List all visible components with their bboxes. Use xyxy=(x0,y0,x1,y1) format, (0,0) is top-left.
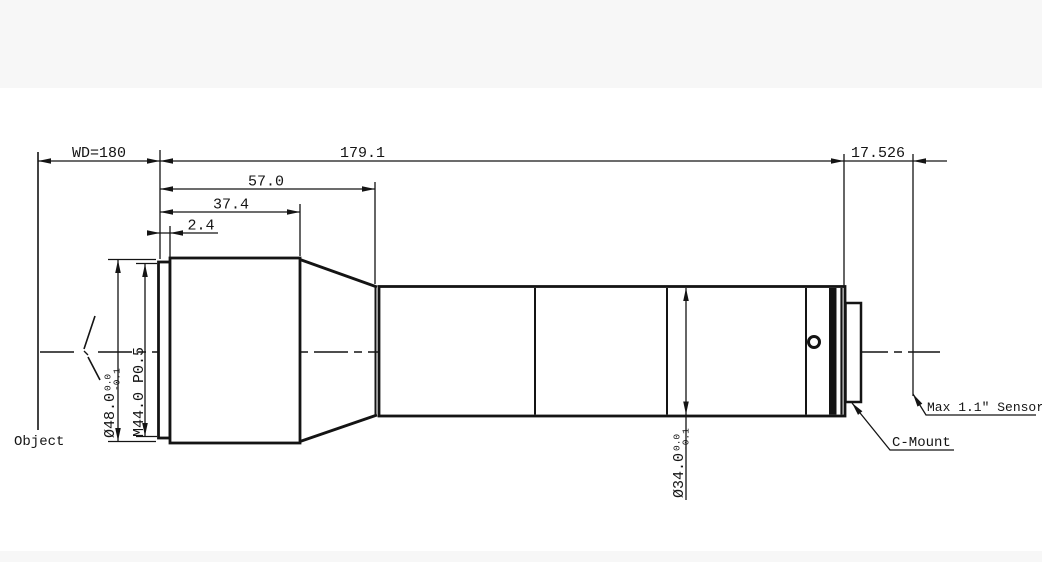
lens-barrel xyxy=(379,287,845,417)
technical-drawing: WD=180 179.1 17.526 57.0 37.4 2.4 Object… xyxy=(0,0,1042,562)
flange-distance-dimension: 17.526 xyxy=(851,145,905,162)
front-thread-callout: M44.0 P0.5 xyxy=(131,347,148,437)
working-distance-dimension: WD=180 xyxy=(72,145,126,162)
total-length-dimension: 179.1 xyxy=(340,145,385,162)
top-band xyxy=(0,0,1042,88)
step-length-dimension: 2.4 xyxy=(187,218,214,235)
set-screw xyxy=(809,337,820,348)
front-body-length-dimension: 37.4 xyxy=(213,197,249,214)
lens-front-step xyxy=(159,262,171,438)
object-label: Object xyxy=(14,434,64,450)
lens-front-body xyxy=(170,258,300,443)
lens-body xyxy=(159,258,862,443)
lens-technical-drawing-page: WD=180 179.1 17.526 57.0 37.4 2.4 Object… xyxy=(0,0,1042,562)
max-sensor-label: Max 1.1″ Sensor xyxy=(927,400,1042,415)
barrel-diameter-tolerance-lower: -0.1 xyxy=(681,428,692,451)
c-mount-label: C-Mount xyxy=(892,435,951,451)
c-mount-flange xyxy=(846,303,862,402)
barrel-diameter-value: Ø34.0 xyxy=(671,453,688,498)
front-length-dimension: 57.0 xyxy=(248,174,284,191)
front-thread-value: M44.0 P0.5 xyxy=(131,347,148,437)
front-diameter-value: Ø48.0 xyxy=(102,393,119,438)
front-diameter-tolerance-lower: -0.1 xyxy=(112,368,123,391)
flange-ring-band xyxy=(829,288,837,415)
bottom-band xyxy=(0,551,1042,562)
